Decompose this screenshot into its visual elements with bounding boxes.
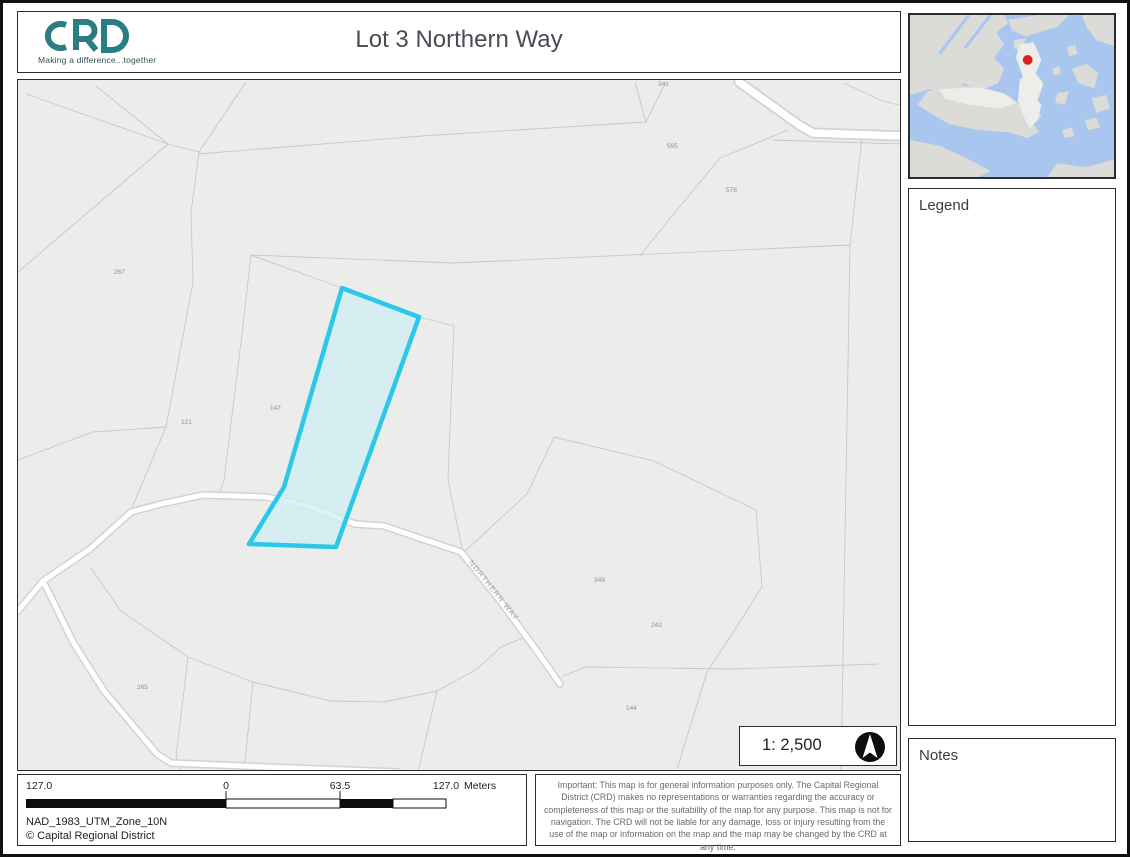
page-title: Lot 3 Northern Way — [18, 26, 900, 54]
scalebar-units: Meters — [464, 780, 496, 792]
parcel-number-label: 147 — [270, 405, 281, 412]
scalebar-drawing: 127.0 0 63.5 127.0 Meters NAD_1983_UTM_Z… — [18, 775, 526, 845]
scalebar-label-left: 127.0 — [26, 780, 52, 792]
parcel-number-label: 578 — [726, 187, 737, 194]
copyright-label: © Capital Regional District — [26, 830, 155, 842]
parcel-number-label: 341 — [658, 81, 669, 88]
map-export-page: Making a difference...together Lot 3 Nor… — [0, 0, 1130, 857]
scalebar-label-zero: 0 — [223, 780, 229, 792]
map-canvas: NORTHERN WAY 341595578267147121349242265… — [17, 79, 901, 771]
location-marker — [1023, 55, 1033, 65]
scalebar-panel: 127.0 0 63.5 127.0 Meters NAD_1983_UTM_Z… — [17, 774, 527, 846]
scalebar-bar — [26, 799, 446, 808]
map-drawing: NORTHERN WAY 341595578267147121349242265… — [18, 80, 901, 771]
north-arrow-icon — [853, 730, 887, 764]
parcel-number-label: 265 — [137, 684, 148, 691]
parcel-number-label: 121 — [181, 419, 192, 426]
legend-title: Legend — [919, 197, 969, 214]
scalebar-ticks — [226, 791, 340, 799]
legend-panel: Legend — [908, 188, 1116, 726]
logo-tagline: Making a difference...together — [38, 55, 156, 65]
disclaimer-text: Important: This map is for general infor… — [544, 779, 892, 853]
scalebar-label-right: 127.0 — [433, 780, 459, 792]
locator-inset-map — [908, 13, 1116, 179]
notes-panel: Notes — [908, 738, 1116, 842]
scalebar-label-mid: 63.5 — [330, 780, 351, 792]
inset-map-drawing — [910, 15, 1114, 177]
scale-indicator: 1: 2,500 — [739, 726, 897, 766]
title-bar: Making a difference...together Lot 3 Nor… — [17, 11, 901, 73]
disclaimer-panel: Important: This map is for general infor… — [535, 774, 901, 846]
parcel-number-label: 267 — [114, 269, 125, 276]
parcel-number-label: 595 — [667, 143, 678, 150]
parcel-number-label: 349 — [594, 577, 605, 584]
parcel-number-label: 144 — [626, 705, 637, 712]
projection-label: NAD_1983_UTM_Zone_10N — [26, 816, 167, 828]
parcel-number-label: 242 — [651, 622, 662, 629]
scale-ratio: 1: 2,500 — [762, 736, 822, 755]
notes-title: Notes — [919, 747, 958, 764]
